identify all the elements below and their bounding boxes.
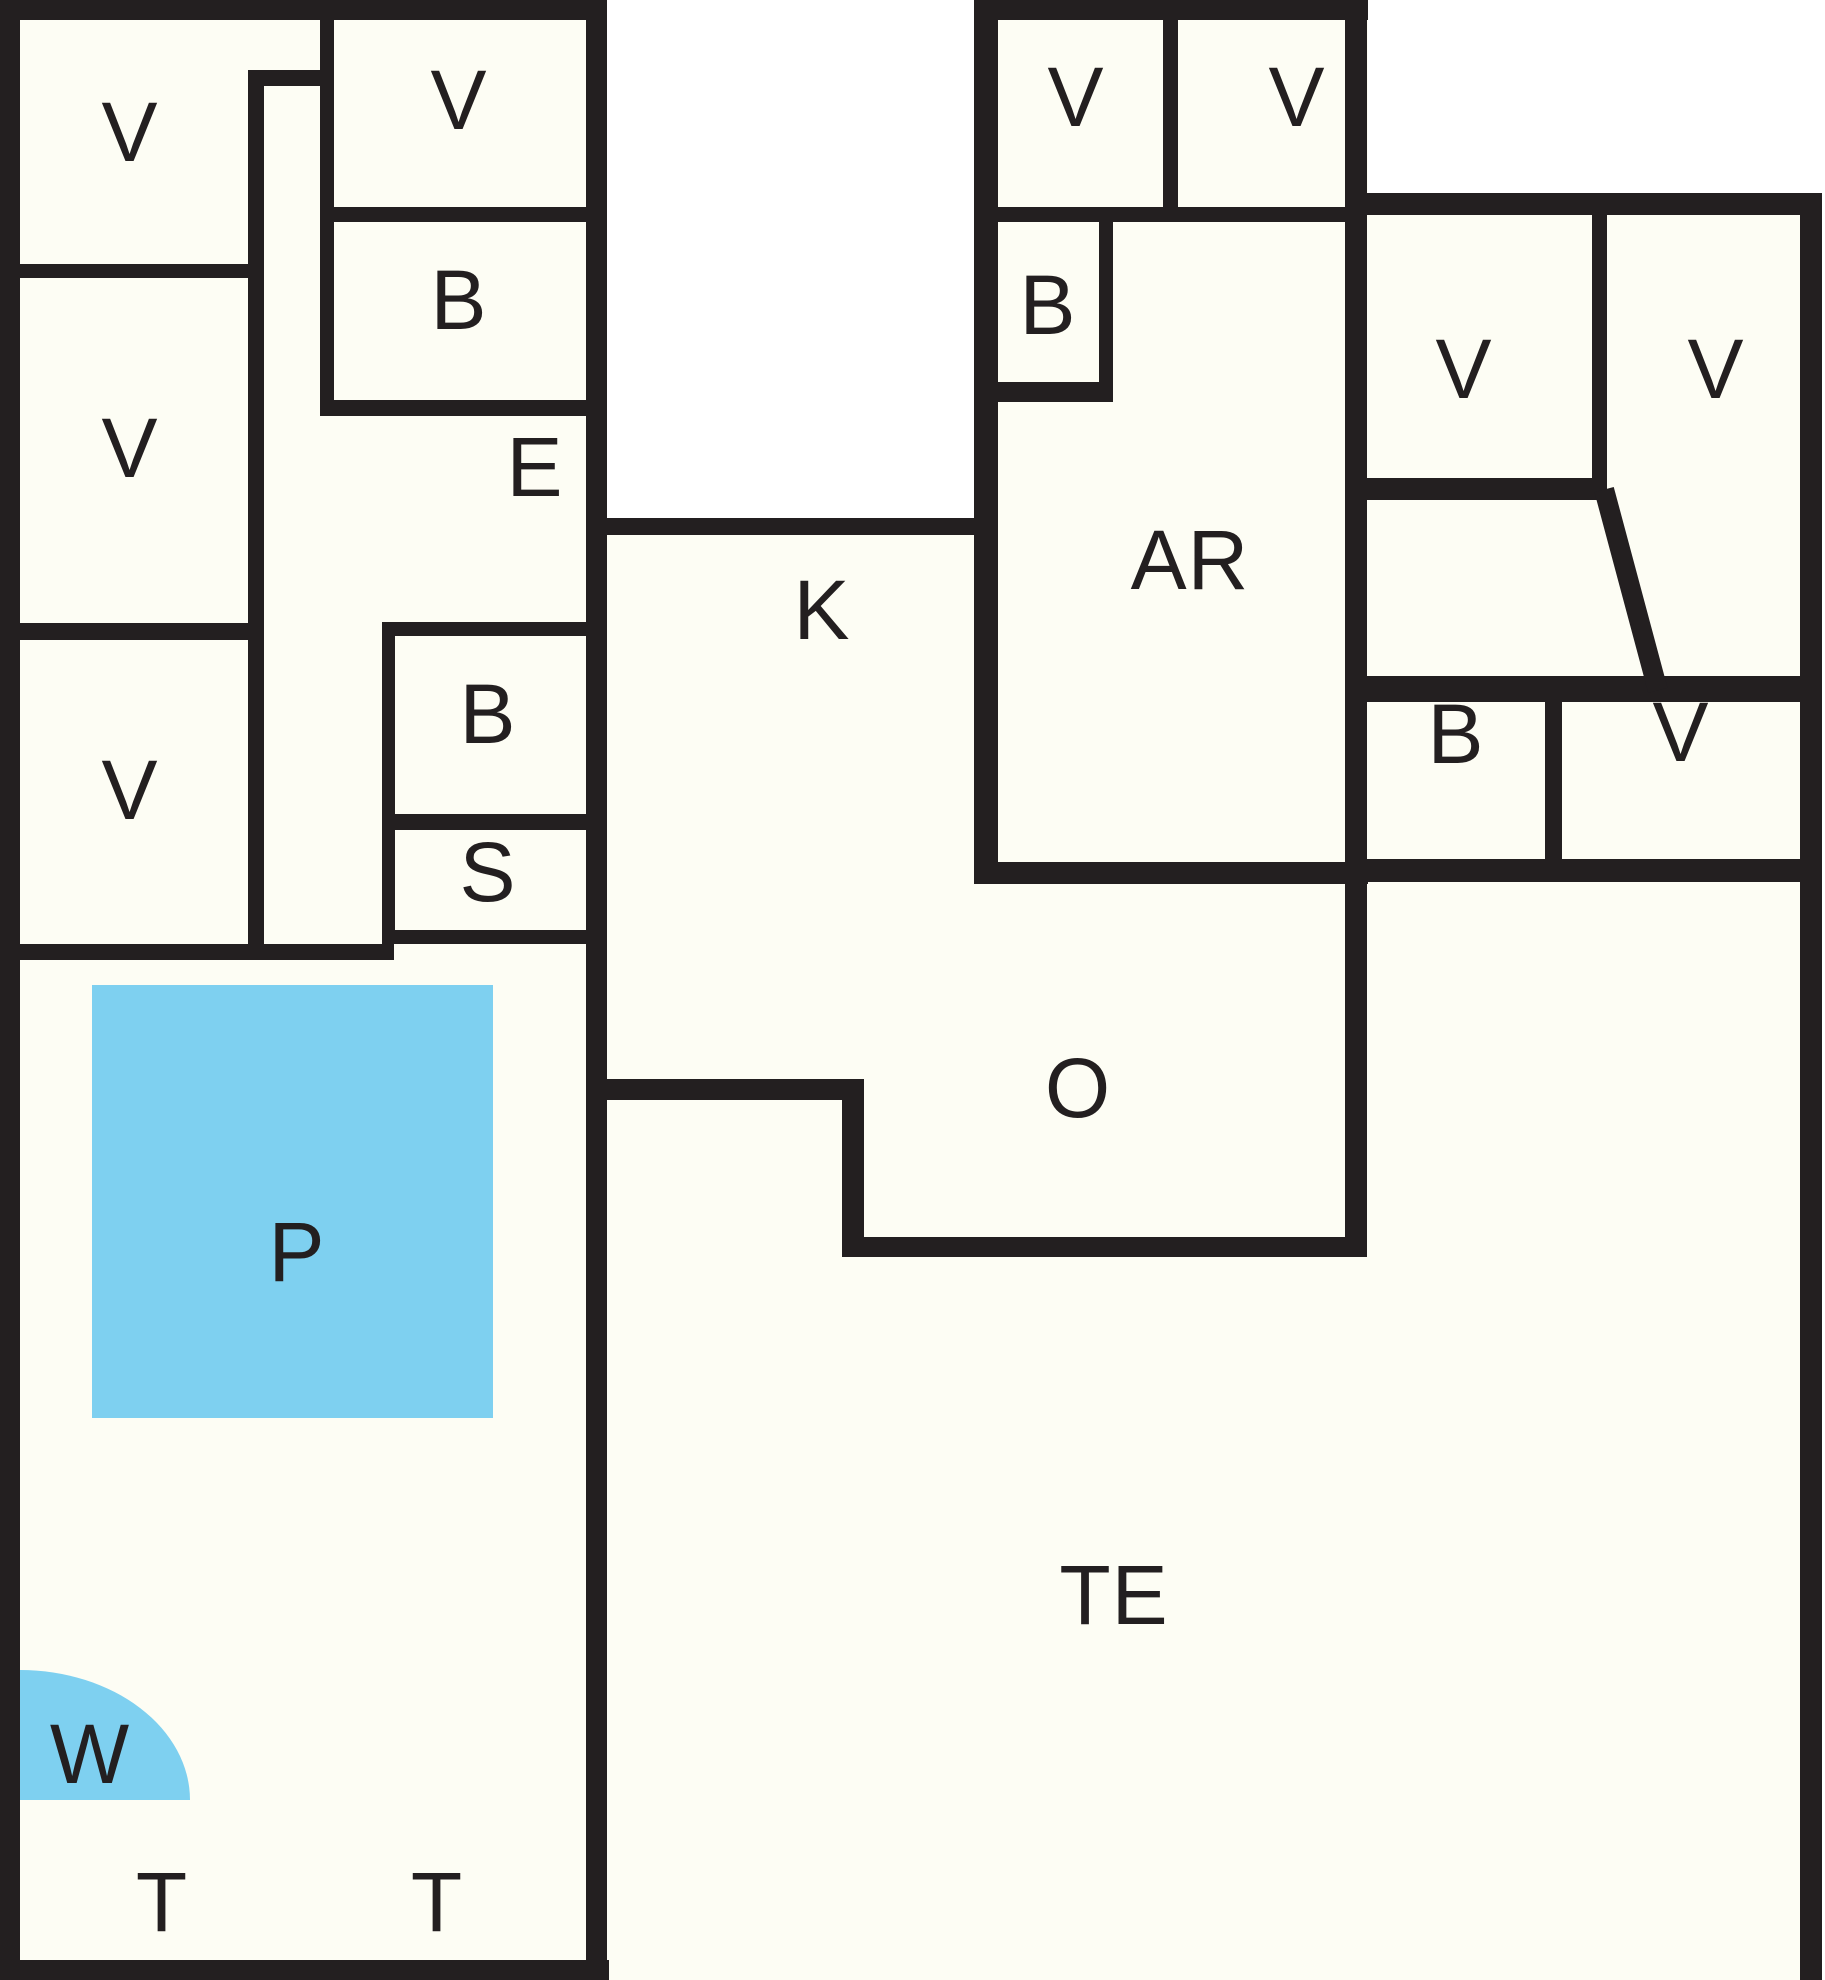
wing-vleft-bottom	[1345, 478, 1607, 500]
room-label-o: O	[1045, 1046, 1111, 1130]
va-vb-divider	[1163, 20, 1178, 208]
wing-top	[1345, 193, 1822, 215]
outer-top-left	[0, 0, 607, 20]
floor-plan-canvas: VVVVBEBSKVVBARVVBVOTEPWTT	[0, 0, 1825, 1980]
right-wing-area	[1345, 193, 1822, 882]
outer-left	[0, 0, 20, 1980]
room-label-te: TE	[1059, 1553, 1168, 1637]
room-label-v-wing-left: V	[1435, 327, 1492, 411]
room-label-v-wing-row: V	[1652, 690, 1709, 774]
room-label-p: P	[268, 1210, 325, 1294]
o-te-bottom	[842, 1237, 1367, 1257]
block-right	[1345, 0, 1367, 1257]
wing-row-top	[1345, 676, 1822, 702]
room-label-b-ar: B	[1019, 263, 1076, 347]
step-vertical	[842, 1100, 864, 1257]
room-label-v2: V	[101, 406, 158, 490]
room-label-b-wing: B	[1427, 692, 1484, 776]
room-label-t2: T	[411, 1860, 463, 1944]
room-label-v3: V	[101, 748, 158, 832]
corridor-left	[248, 70, 264, 960]
v1-bottom	[17, 264, 263, 278]
room-label-t1: T	[136, 1860, 188, 1944]
outer-right	[1800, 193, 1822, 1980]
k-bottom-step	[586, 1079, 864, 1100]
room-label-v-wing-right: V	[1687, 327, 1744, 411]
room-label-v-center-1: V	[1047, 55, 1104, 139]
room-label-s: S	[459, 830, 516, 914]
ar-block-left	[974, 0, 998, 884]
room-label-v-center-2: V	[1268, 55, 1325, 139]
b-s-left	[382, 622, 395, 944]
outer-top-center	[974, 0, 1368, 20]
small-b-bottom	[998, 382, 1113, 402]
small-b-right	[1099, 222, 1113, 382]
terrace-right-area	[1345, 862, 1822, 1980]
wing-v-divider	[1592, 215, 1607, 486]
v2-bottom	[17, 623, 263, 640]
blower-top	[382, 622, 607, 636]
wing-row-bottom	[1345, 859, 1822, 882]
room-label-ar: AR	[1131, 518, 1250, 602]
void-bottom	[607, 518, 977, 535]
vmid-bottom	[320, 207, 586, 222]
room-label-b-mid: B	[430, 258, 487, 342]
main-spine	[586, 0, 607, 1980]
center-v-bottom	[998, 207, 1345, 222]
pool-room-top	[17, 944, 394, 960]
s-bottom	[382, 930, 607, 944]
ar-bottom	[998, 862, 1368, 884]
bmid-bottom	[320, 400, 607, 416]
outer-bottom-left	[0, 1960, 609, 1980]
room-label-e: E	[506, 425, 563, 509]
wing-b-v-divider	[1545, 702, 1562, 862]
swimming-pool	[92, 985, 493, 1418]
room-label-b-lower: B	[459, 672, 516, 756]
room-label-v1: V	[101, 90, 158, 174]
room-label-k: K	[793, 568, 850, 652]
room-label-v-mid: V	[430, 58, 487, 142]
room-label-w: W	[50, 1712, 130, 1796]
